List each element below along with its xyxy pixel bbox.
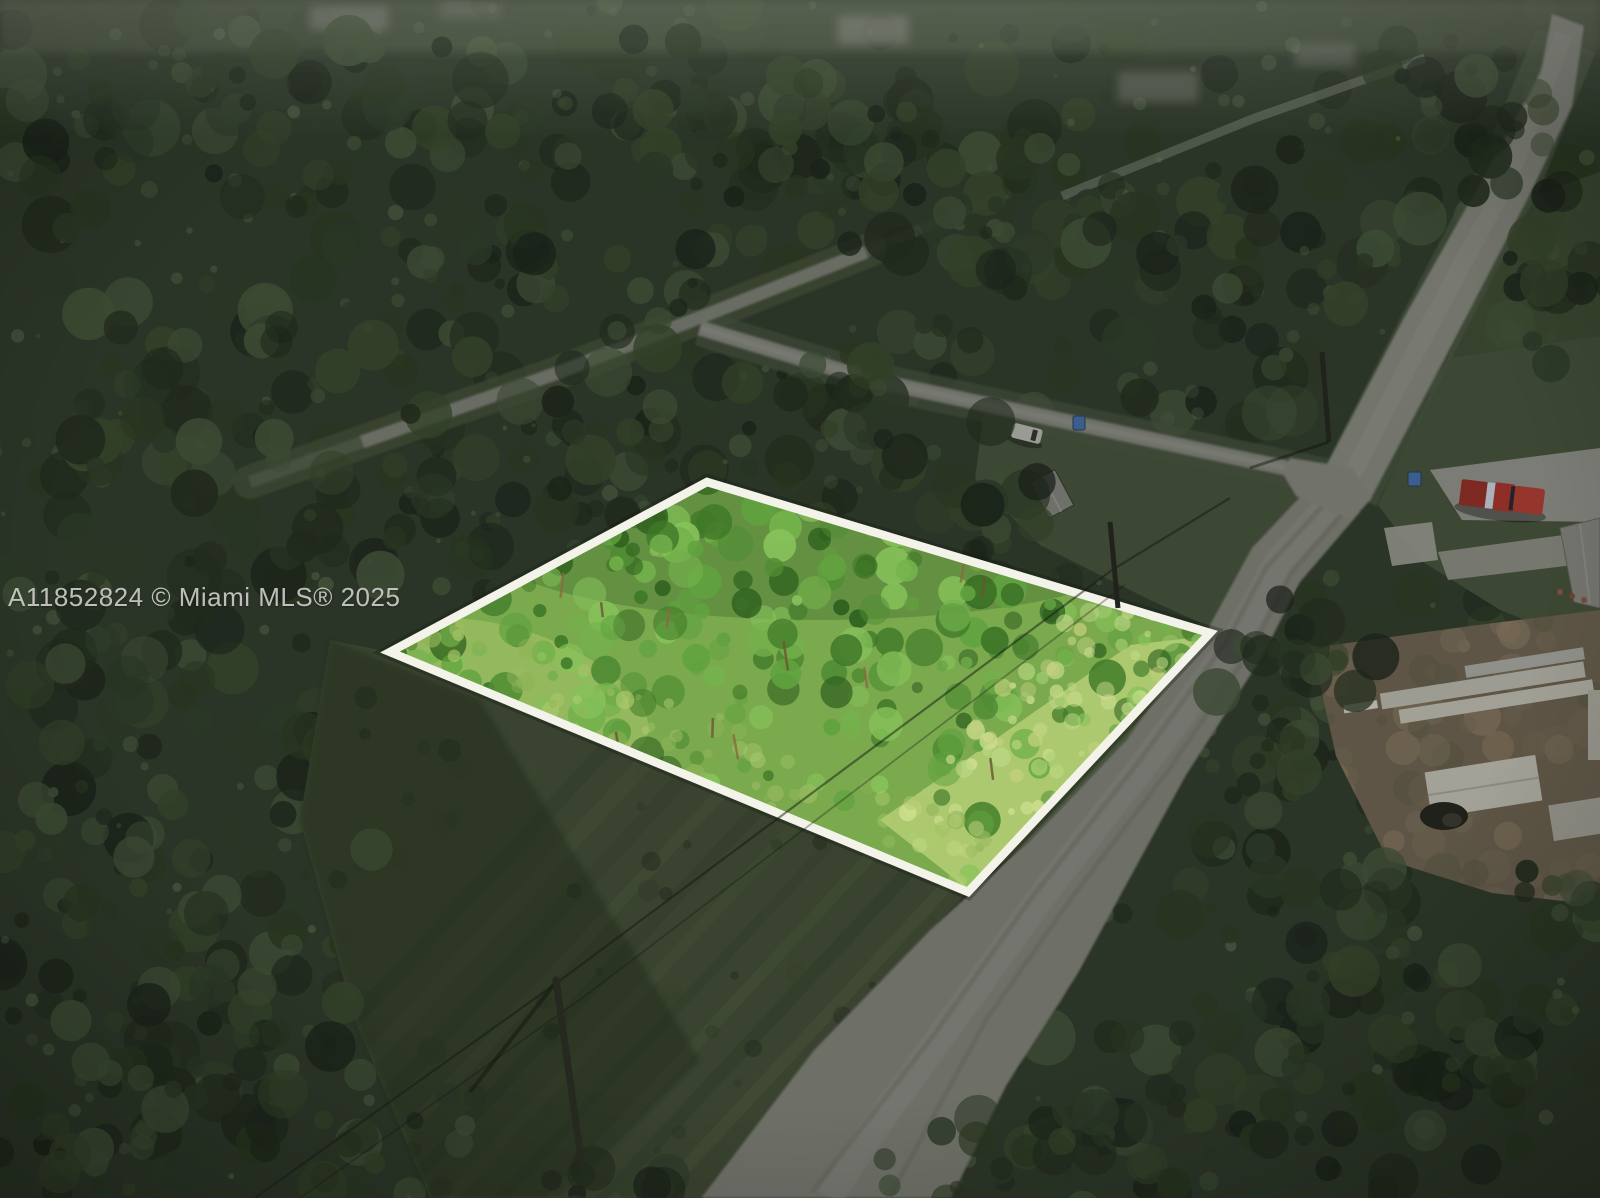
mls-watermark-text: A11852824 © Miami MLS® 2025 <box>8 582 400 613</box>
distance-haze <box>0 0 1600 140</box>
aerial-photo-canvas: A11852824 © Miami MLS® 2025 <box>0 0 1600 1198</box>
